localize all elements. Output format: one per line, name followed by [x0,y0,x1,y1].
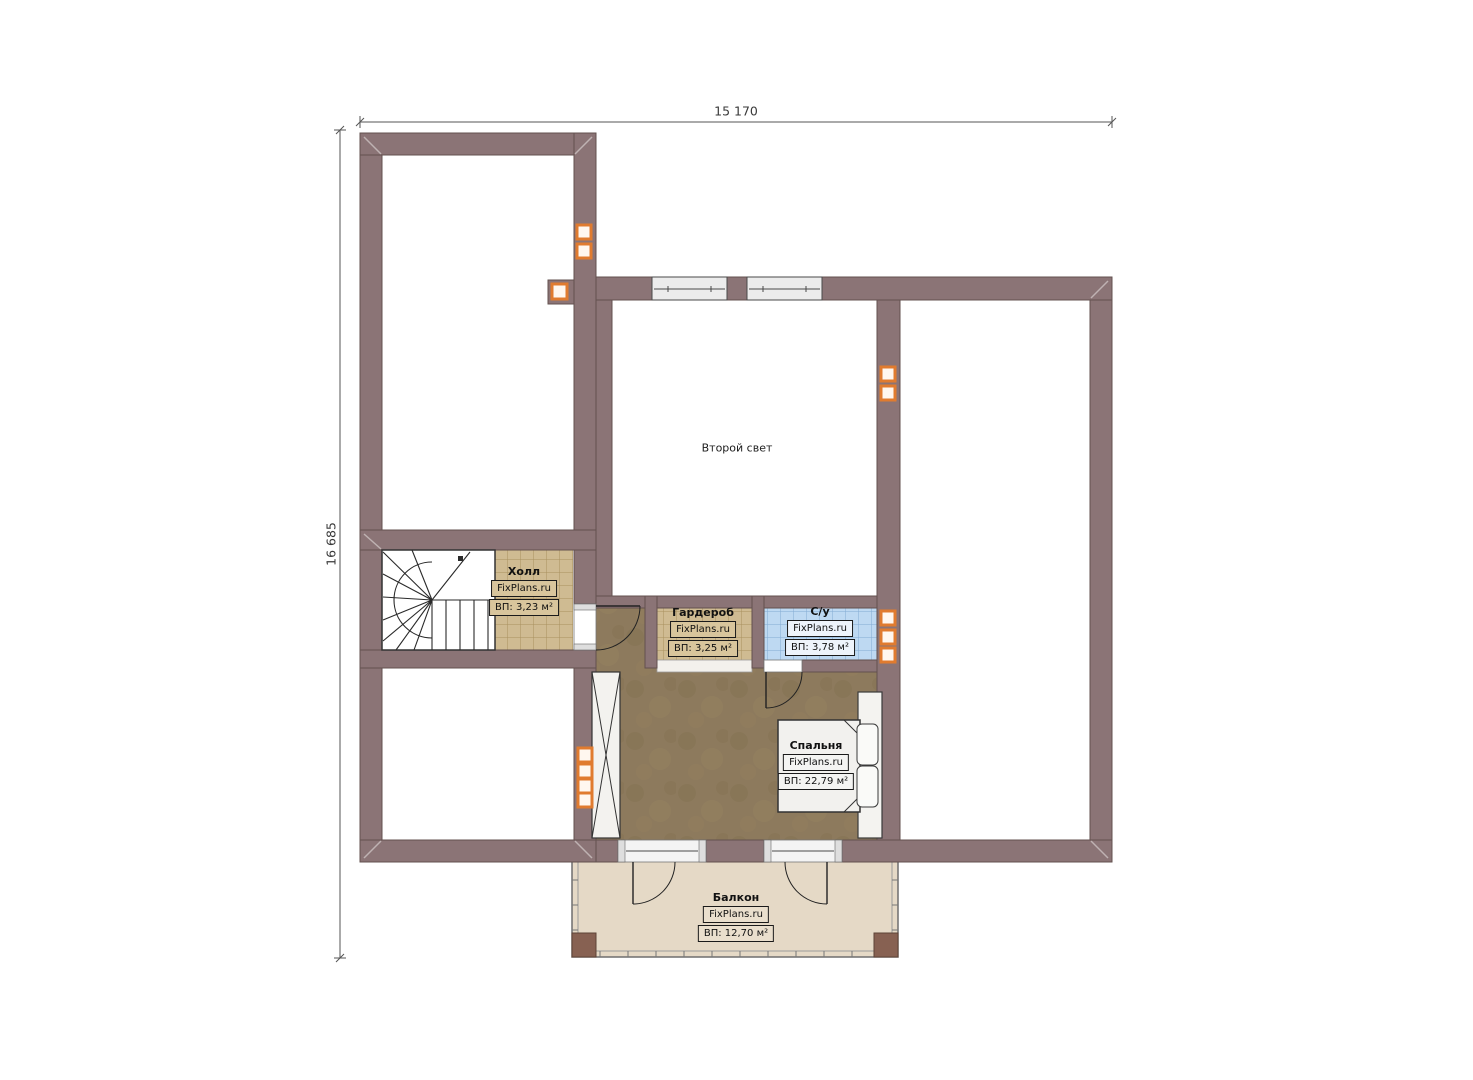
hall-brand: FixPlans.ru [491,580,557,597]
balcony-post [572,933,596,957]
bathroom-brand: FixPlans.ru [787,620,853,637]
balcony-post [874,933,898,957]
balcony-brand: FixPlans.ru [703,906,769,923]
wardrobe-cabinet [592,672,620,838]
wardrobe-area: ВП: 3,25 м² [668,640,738,657]
chimney-block [548,280,574,304]
wardrobe-brand: FixPlans.ru [670,621,736,638]
bedroom-title: Спальня [790,740,843,752]
room-label-second-light: Второй свет [702,442,773,455]
pillow [857,766,878,807]
wardrobe-threshold [657,660,752,672]
bathroom-area: ВП: 3,78 м² [785,639,855,656]
bedroom-area: ВП: 22,79 м² [778,773,854,790]
room-label-hall: Холл FixPlans.ru ВП: 3,23 м² [489,566,559,616]
pillow [857,724,878,765]
bathroom-title: С/у [810,606,829,618]
room-label-bathroom: С/у FixPlans.ru ВП: 3,78 м² [785,606,855,656]
staircase [382,550,495,650]
balcony-area: ВП: 12,70 м² [698,925,774,942]
window [652,277,727,300]
bedroom-brand: FixPlans.ru [783,754,849,771]
room-label-bedroom: Спальня FixPlans.ru ВП: 22,79 м² [778,740,854,790]
window [747,277,822,300]
wardrobe-title: Гардероб [672,607,734,619]
dimension-height-label: 16 685 [324,522,339,566]
room-label-wardrobe: Гардероб FixPlans.ru ВП: 3,25 м² [668,607,738,657]
dimension-width-label: 15 170 [714,104,758,119]
hall-area: ВП: 3,23 м² [489,599,559,616]
room-label-balcony: Балкон FixPlans.ru ВП: 12,70 м² [698,892,774,942]
balcony-title: Балкон [713,892,760,904]
floor-plan-canvas: 15 170 16 685 Второй свет Холл FixPlans.… [0,0,1473,1080]
hall-title: Холл [508,566,540,578]
